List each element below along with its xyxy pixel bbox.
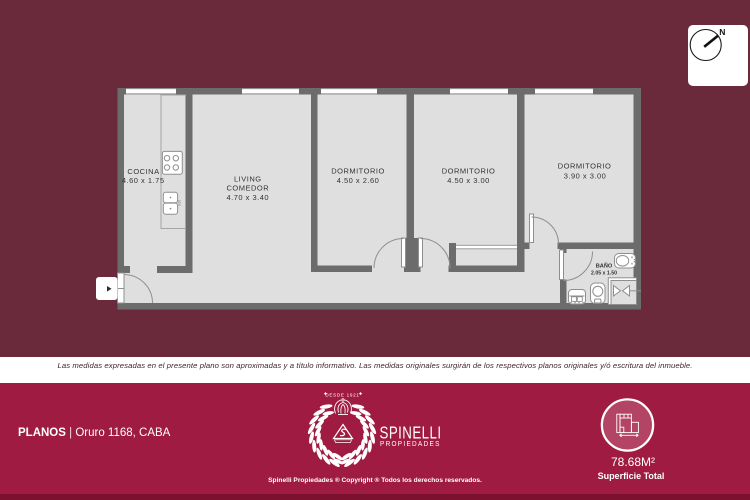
svg-text:COMEDOR: COMEDOR: [226, 184, 269, 193]
svg-text:BAÑO: BAÑO: [596, 263, 613, 270]
svg-text:DORMITORIO: DORMITORIO: [558, 162, 612, 171]
svg-text:COCINA: COCINA: [127, 167, 159, 176]
svg-text:PROPIEDADES: PROPIEDADES: [380, 441, 441, 448]
svg-text:LIVING: LIVING: [234, 174, 262, 183]
svg-text:2.05 x 1.50: 2.05 x 1.50: [591, 271, 617, 277]
svg-text:3.90 x 3.00: 3.90 x 3.00: [564, 172, 607, 181]
svg-text:4.70 x 3.40: 4.70 x 3.40: [226, 193, 269, 202]
svg-text:4.50 x 2.60: 4.50 x 2.60: [337, 176, 380, 185]
svg-text:DORMITORIO: DORMITORIO: [331, 167, 385, 176]
svg-text:4.50 x 3.00: 4.50 x 3.00: [447, 176, 490, 185]
svg-text:4.60 x 1.75: 4.60 x 1.75: [122, 176, 165, 185]
svg-text:0.60: 0.60: [178, 200, 182, 206]
svg-text:DORMITORIO: DORMITORIO: [442, 167, 496, 176]
svg-text:DESDE 1921: DESDE 1921: [325, 392, 359, 397]
svg-text:N: N: [719, 27, 725, 37]
